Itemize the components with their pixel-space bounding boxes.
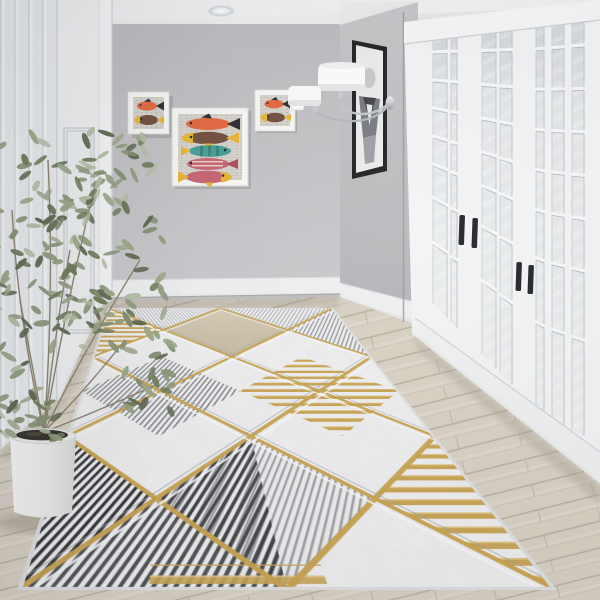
plant-pot bbox=[10, 429, 76, 518]
plant-layer bbox=[0, 0, 600, 600]
hallway-photo bbox=[0, 0, 600, 600]
plant-foliage bbox=[0, 126, 179, 444]
potted-plant bbox=[0, 126, 179, 518]
